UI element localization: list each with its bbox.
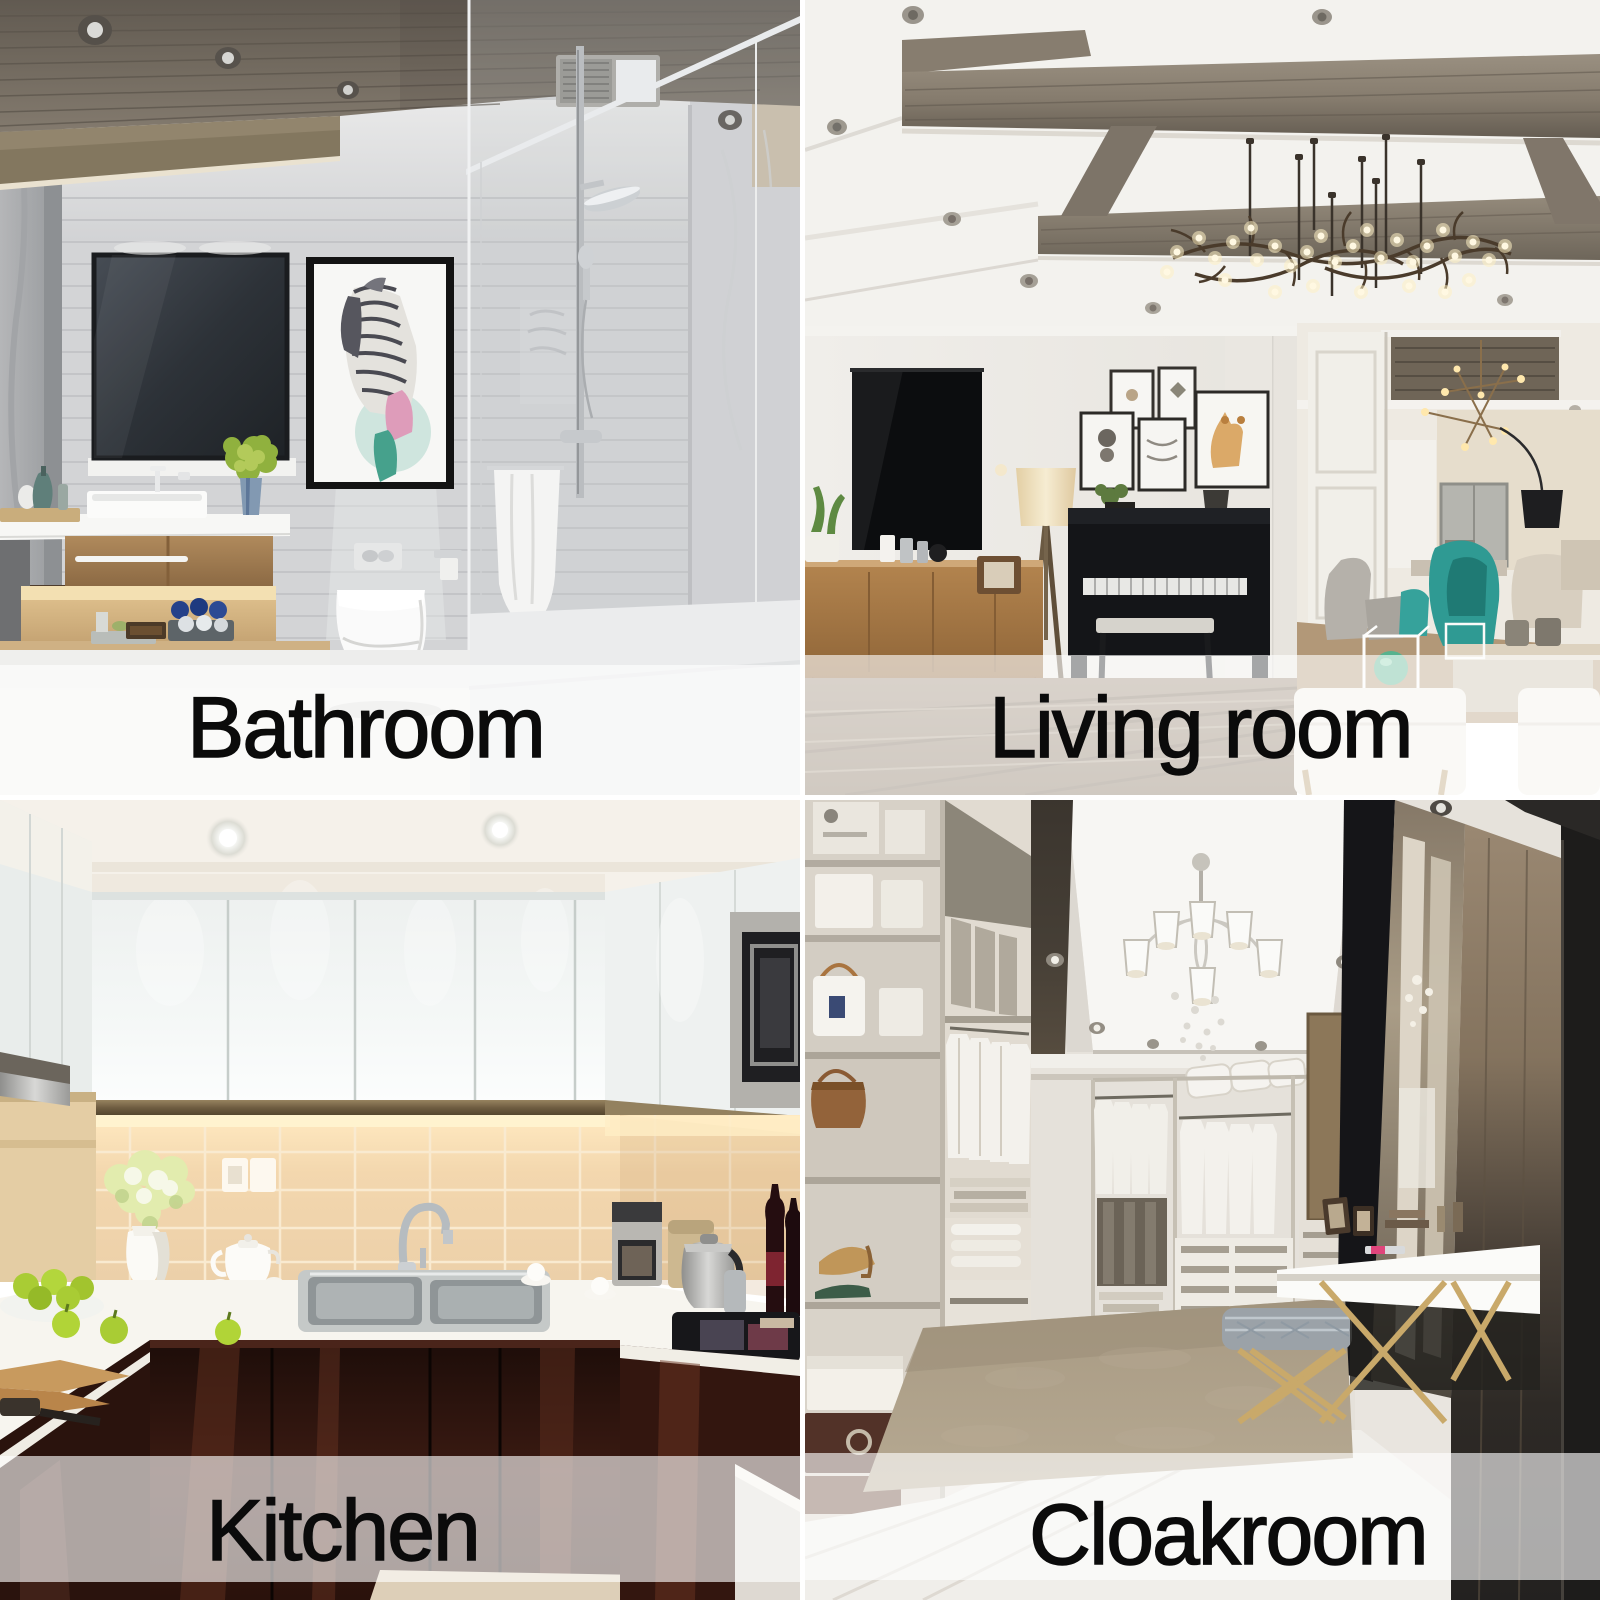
svg-text:Cloakroom: Cloakroom: [1029, 1487, 1427, 1583]
svg-text:Living room: Living room: [989, 680, 1412, 776]
svg-text:Bathroom: Bathroom: [187, 680, 544, 776]
svg-text:Kitchen: Kitchen: [206, 1483, 479, 1579]
